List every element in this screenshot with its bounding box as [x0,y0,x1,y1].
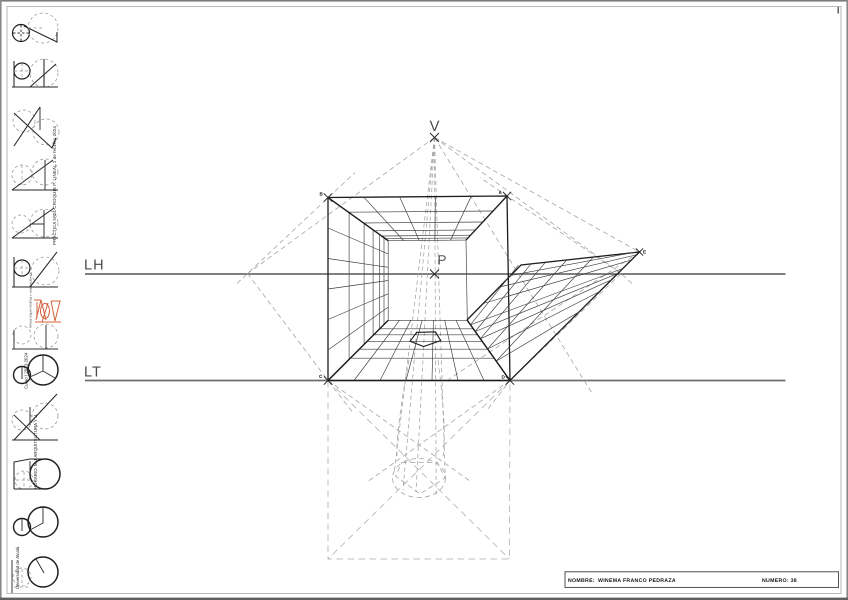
svg-text:PRÁCTICA Nº04-CROQUIS P. LINEA: PRÁCTICA Nº04-CROQUIS P. LINEAL 1 de feb… [52,126,57,245]
svg-text:Universidad de Alcalá: Universidad de Alcalá [15,546,20,589]
svg-text:P: P [438,253,447,268]
svg-text:LH: LH [84,258,105,274]
svg-text:HORARIO: M-1 ARQUITECTURA Y U.: HORARIO: M-1 ARQUITECTURA Y U. [33,414,38,489]
svg-text:Curso / 2023-2024: Curso / 2023-2024 [24,352,29,389]
svg-text:WINEMA FRANCO PEDRAZA: WINEMA FRANCO PEDRAZA [598,578,676,584]
svg-text:NOMBRE:: NOMBRE: [568,578,595,584]
svg-text:V: V [429,118,439,135]
svg-text:Artista Sigem Gráfica y arquit: Artista Sigem Gráfica y arquitectónica [29,272,33,328]
svg-text:LT: LT [84,365,102,381]
svg-text:NUMERO: 38: NUMERO: 38 [762,578,797,584]
